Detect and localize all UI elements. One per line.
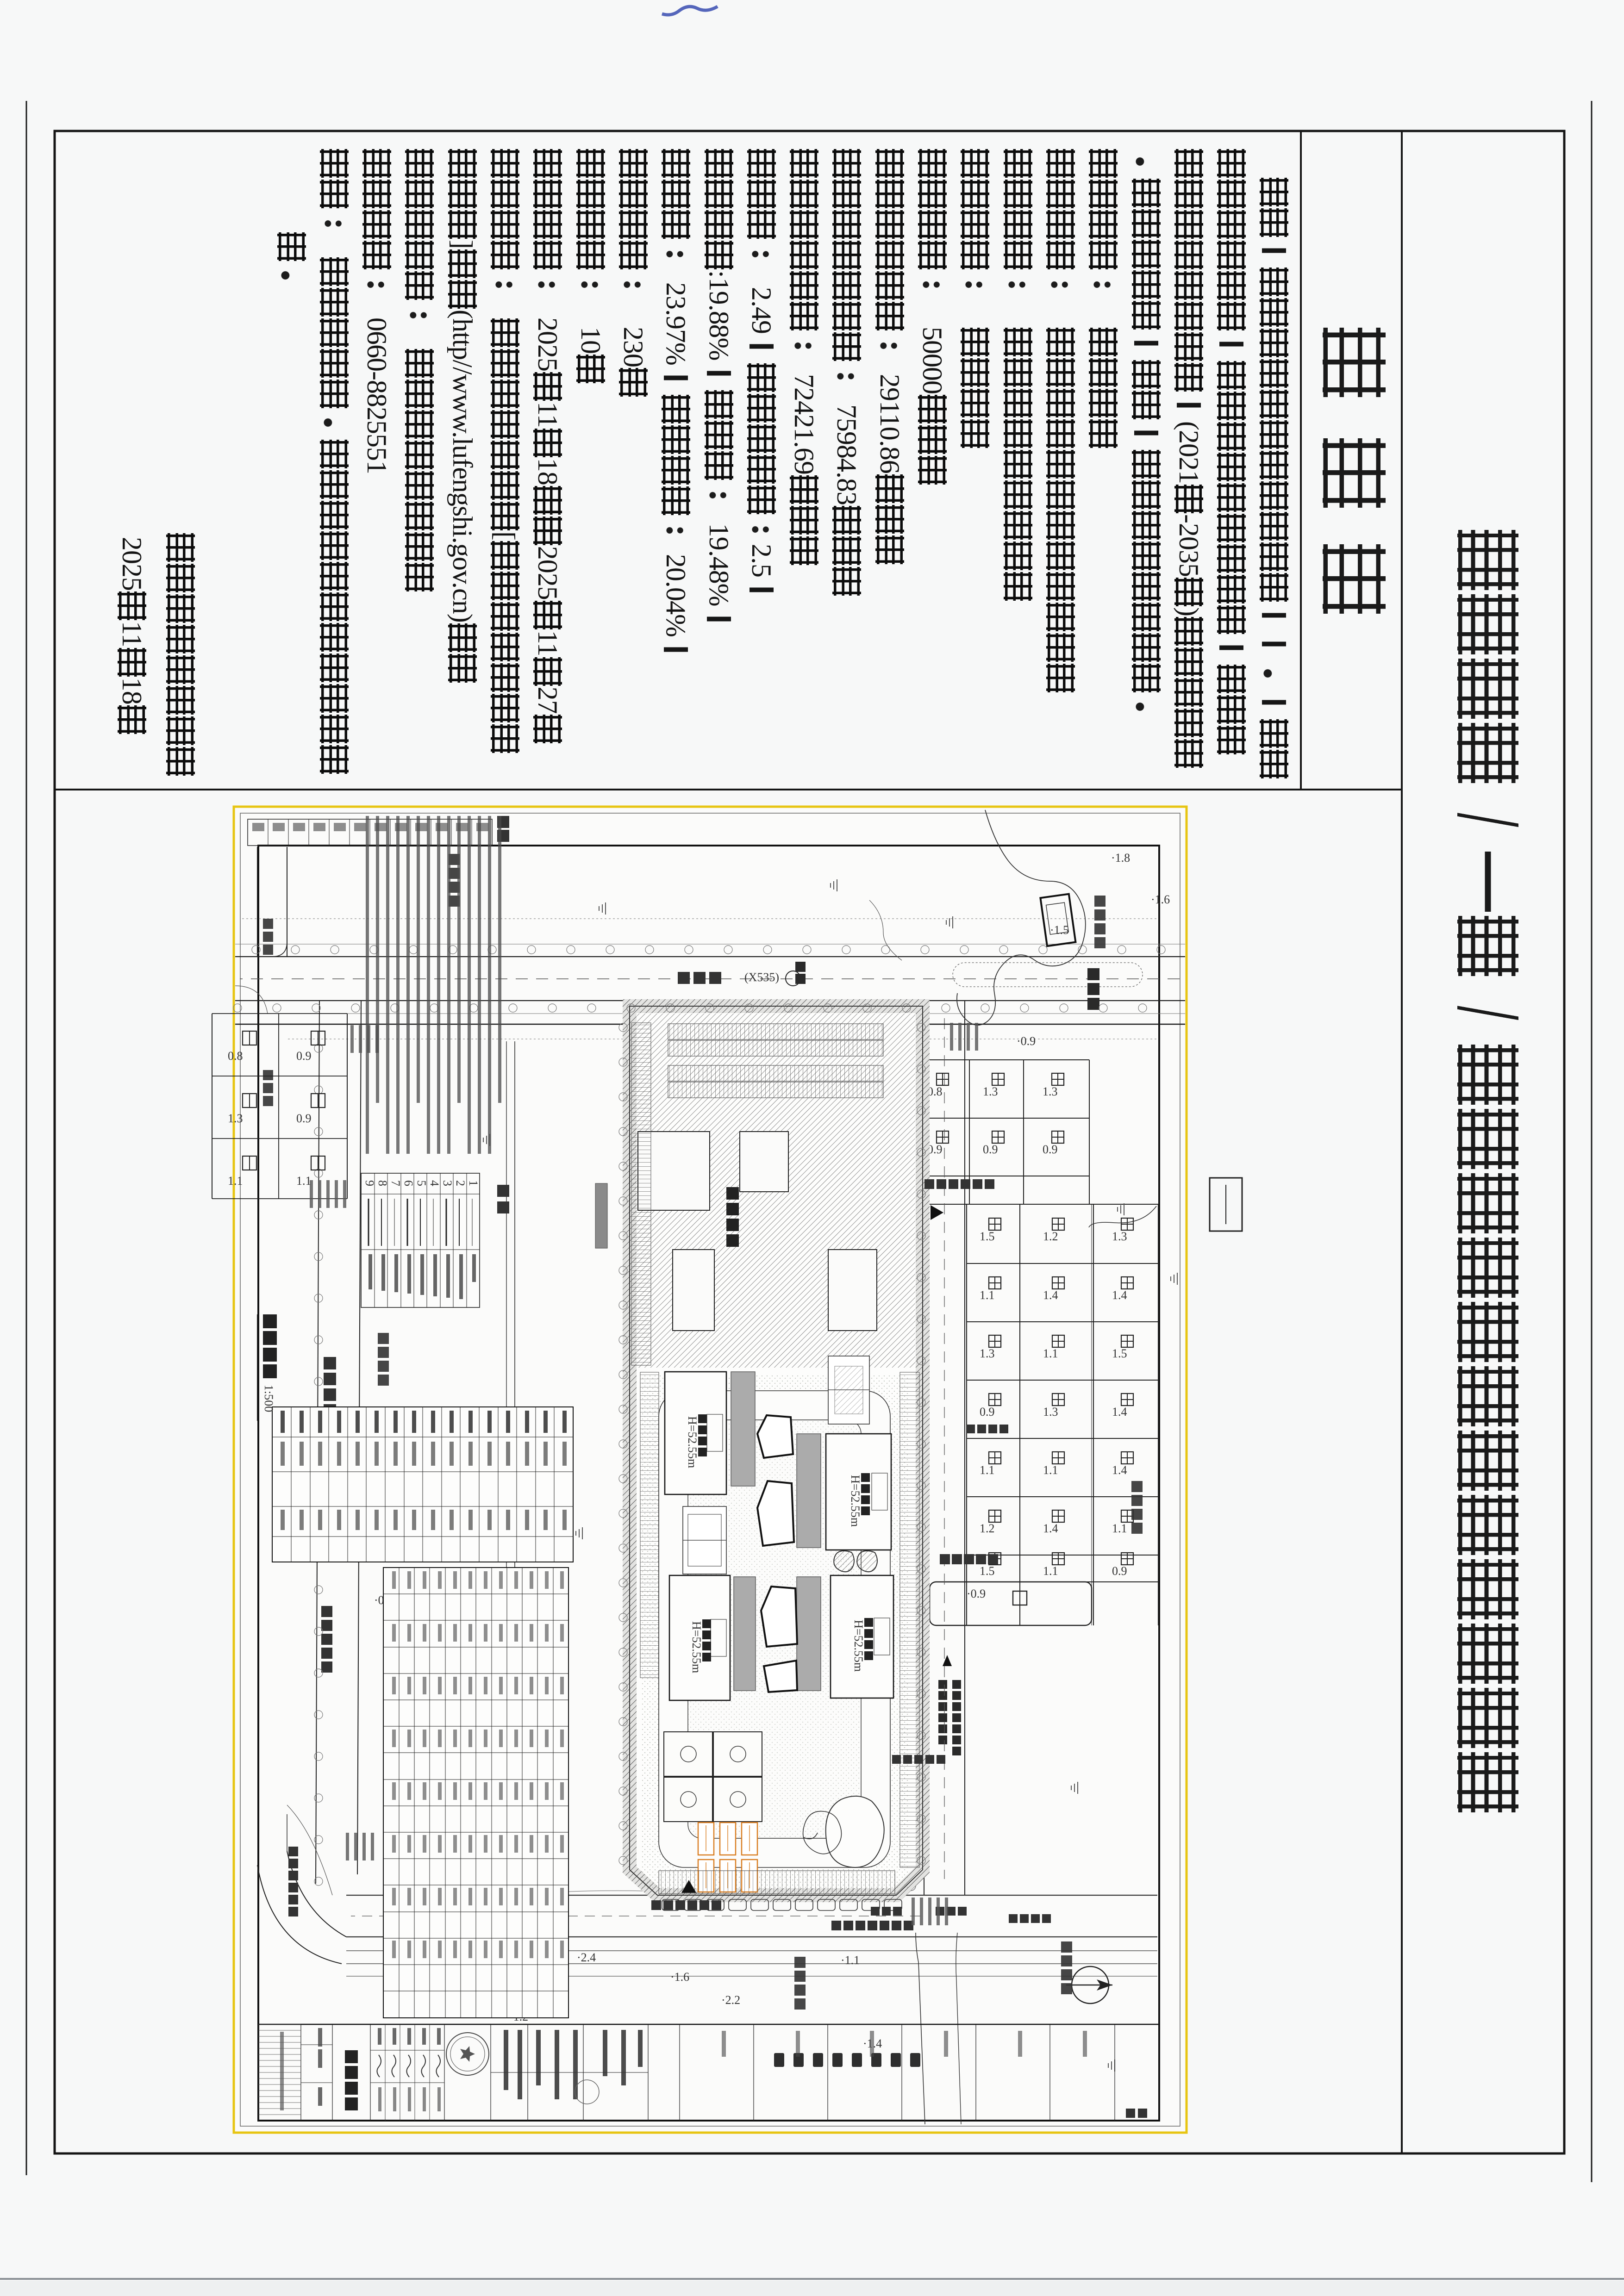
svg-text:8: 8 [376,1180,389,1186]
svg-text:1.3: 1.3 [1112,1230,1127,1243]
svg-text:9: 9 [363,1180,376,1186]
svg-text:1.3: 1.3 [980,1347,995,1360]
svg-text:0.9: 0.9 [296,1112,312,1125]
svg-text:1.3: 1.3 [228,1112,243,1125]
svg-text:·1.1: ·1.1 [841,1954,860,1967]
svg-text:H=52.55m: H=52.55m [852,1620,865,1672]
svg-text:6: 6 [402,1180,415,1186]
svg-text:1.2: 1.2 [1043,1230,1058,1243]
svg-text:5: 5 [415,1180,428,1186]
svg-text:1.1: 1.1 [228,1174,243,1188]
svg-text:0.9: 0.9 [296,1049,312,1063]
svg-text:1: 1 [467,1180,480,1186]
svg-text:1:500: 1:500 [262,1385,275,1412]
svg-text:0.8: 0.8 [228,1049,243,1063]
svg-text:0.9: 0.9 [1112,1564,1127,1578]
svg-text:1.4: 1.4 [1112,1405,1127,1419]
svg-text:1.3: 1.3 [1043,1405,1058,1419]
svg-text:·1.6: ·1.6 [670,1970,689,1984]
svg-text:4: 4 [428,1180,441,1186]
svg-text:1.1: 1.1 [980,1288,995,1302]
svg-text:1.3: 1.3 [1043,1085,1058,1098]
svg-text:0.9: 0.9 [983,1143,998,1156]
svg-text:0.9: 0.9 [980,1405,995,1419]
svg-text:1.5: 1.5 [1112,1347,1127,1360]
svg-text:1.3: 1.3 [983,1085,998,1098]
svg-text:·1.8: ·1.8 [1111,851,1130,865]
svg-text:·2.4: ·2.4 [577,1951,596,1964]
svg-text:1.1: 1.1 [1112,1522,1127,1535]
svg-text:1.4: 1.4 [1112,1288,1127,1302]
svg-text:·0.9: ·0.9 [1017,1034,1036,1048]
svg-text:1.5: 1.5 [980,1564,995,1578]
svg-text:·1.6: ·1.6 [1151,893,1170,906]
svg-text:3: 3 [441,1180,454,1186]
svg-text:1.1: 1.1 [296,1174,312,1188]
svg-text:1.1: 1.1 [1043,1463,1058,1477]
svg-text:1.5: 1.5 [980,1230,995,1243]
svg-text:1.4: 1.4 [1043,1522,1058,1535]
svg-text:0.9: 0.9 [1043,1143,1058,1156]
svg-text:H=52.55m: H=52.55m [686,1416,699,1468]
svg-text:·0.9: ·0.9 [967,1587,986,1600]
svg-text:1.1: 1.1 [1043,1564,1058,1578]
svg-text:1.2: 1.2 [980,1522,995,1535]
svg-text:H=52.55m: H=52.55m [849,1475,862,1527]
svg-text:7: 7 [389,1180,402,1186]
svg-text:1.1: 1.1 [1043,1347,1058,1360]
svg-text:2: 2 [454,1180,467,1186]
svg-text:(X535): (X535) [744,971,779,984]
svg-text:·1.5: ·1.5 [1050,923,1069,937]
svg-text:·2.2: ·2.2 [721,1993,740,2007]
svg-text:1.4: 1.4 [1112,1463,1127,1477]
svg-text:H=52.55m: H=52.55m [690,1621,703,1673]
svg-text:1.4: 1.4 [1043,1288,1058,1302]
svg-text:1.1: 1.1 [980,1463,995,1477]
